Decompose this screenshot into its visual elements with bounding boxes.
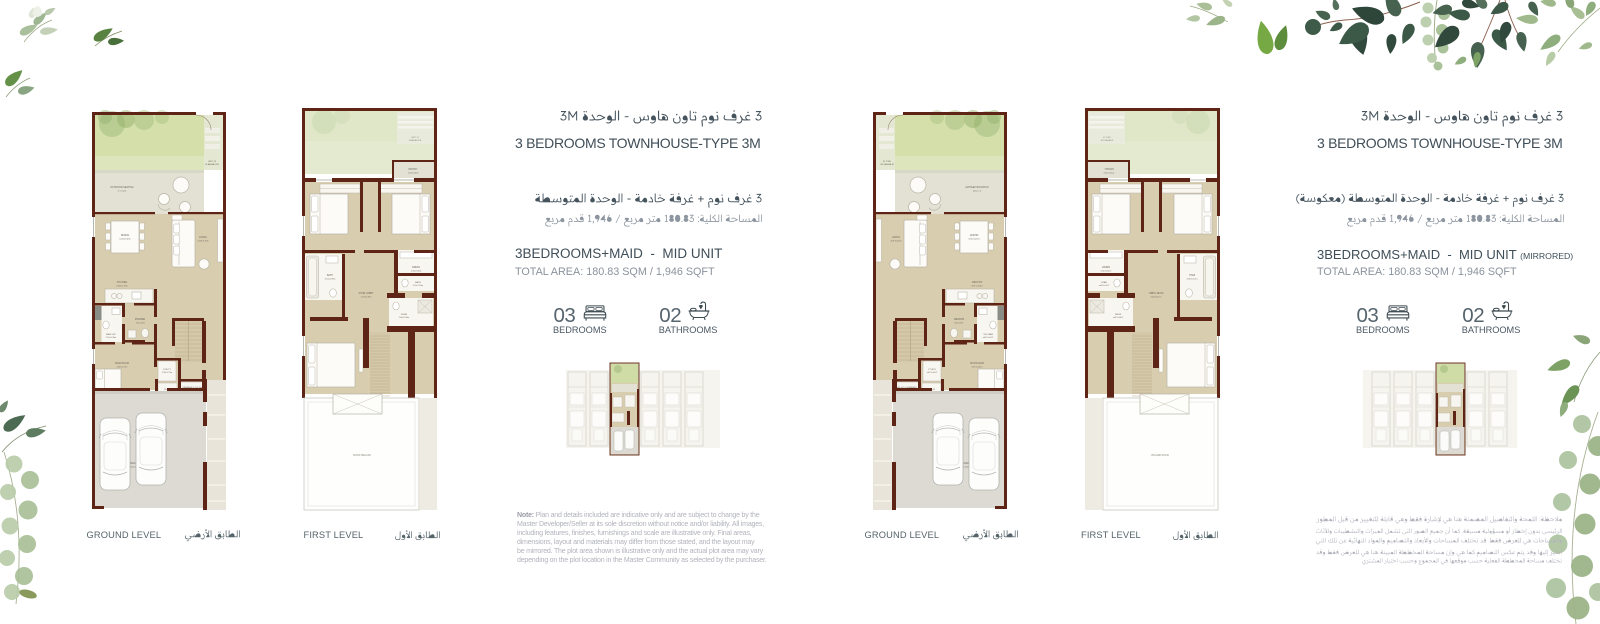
svg-text:UTILITY: UTILITY (163, 369, 172, 371)
svg-text:ROOF BELOW: ROOF BELOW (353, 453, 371, 457)
svg-text:3.25x2.00m: 3.25x2.00m (119, 239, 131, 241)
svg-text:4.35x3.70m: 4.35x3.70m (197, 241, 209, 243)
svg-text:OUTDOOR SEATING: OUTDOOR SEATING (110, 186, 133, 189)
svg-text:KITCHEN: KITCHEN (117, 281, 128, 284)
svg-text:2 x 4.0m: 2 x 4.0m (118, 191, 127, 193)
svg-text:DRESS: DRESS (412, 267, 420, 269)
svg-text:POWDER: POWDER (135, 319, 146, 321)
svg-text:2.10x1.90m: 2.10x1.90m (325, 278, 336, 280)
svg-text:LIVING: LIVING (199, 236, 207, 239)
svg-text:1.05x2.00m: 1.05x2.00m (411, 270, 422, 272)
svg-text:W.B/R: W.B/R (401, 314, 408, 316)
svg-text:UNIT 13: UNIT 13 (411, 137, 419, 139)
svg-text:STAIR LOBBY: STAIR LOBBY (359, 292, 374, 295)
svg-text:SLAB ABOVE: SLAB ABOVE (409, 139, 422, 142)
svg-text:SLAB ABOVE: SLAB ABOVE (205, 163, 219, 166)
svg-text:1.20x2.40m: 1.20x2.40m (408, 172, 419, 174)
svg-text:BATH: BATH (327, 274, 333, 277)
svg-text:PANTRY: PANTRY (408, 168, 418, 171)
svg-text:2.16x1.90m: 2.16x1.90m (413, 285, 424, 287)
svg-text:MAID WC: MAID WC (106, 333, 116, 336)
svg-text:3.60x1.70m: 3.60x1.70m (116, 286, 128, 288)
svg-text:.75x1.55m: .75x1.55m (135, 322, 145, 324)
svg-text:2.60x1.70m: 2.60x1.70m (117, 366, 128, 368)
svg-text:UNIT 13: UNIT 13 (208, 161, 217, 163)
svg-text:MAID ROOM: MAID ROOM (115, 362, 129, 365)
svg-text:1.70x2.30m: 1.70x2.30m (361, 296, 372, 298)
svg-text:DINING: DINING (121, 234, 130, 237)
svg-text:2.10x1.45m: 2.10x1.45m (106, 337, 117, 339)
svg-text:BATH: BATH (415, 281, 421, 284)
svg-text:1.45x1.75m: 1.45x1.75m (162, 372, 173, 374)
svg-text:1.60x2.35m: 1.60x2.35m (399, 317, 410, 319)
